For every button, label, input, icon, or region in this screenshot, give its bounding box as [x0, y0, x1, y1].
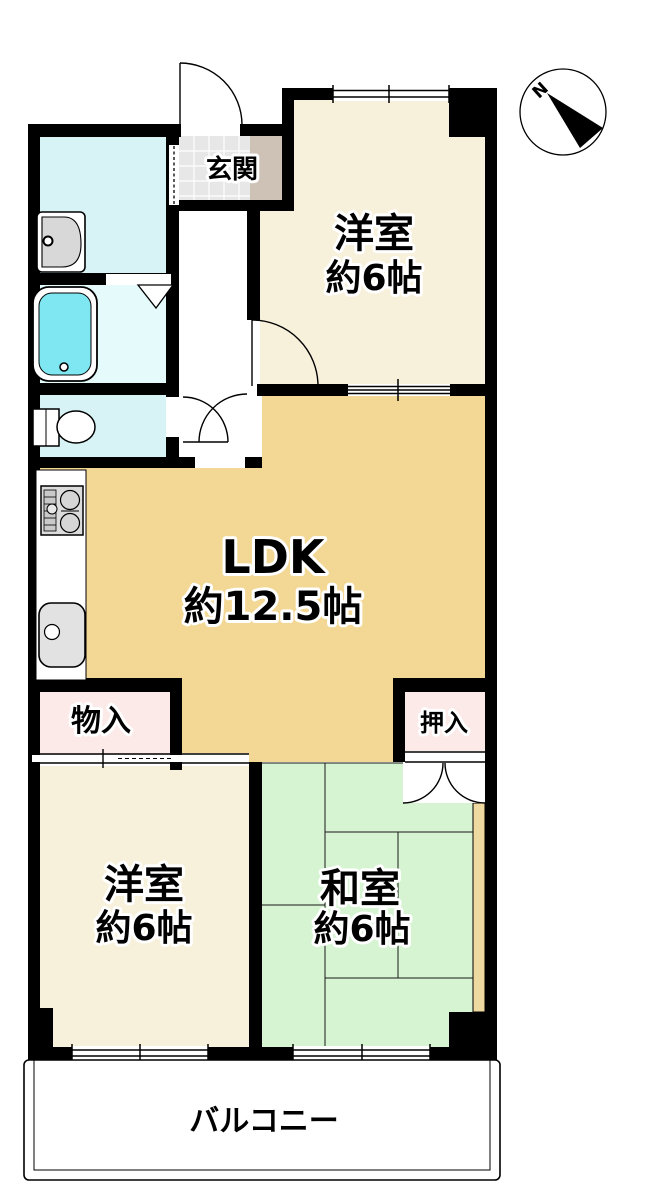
floor-plan-drawing: N 玄関 洋室 約6帖 LDK 約12.5帖 物入 押入 洋室 約6帖 和室 約…	[0, 0, 652, 1200]
tatami-room-size: 約6帖	[313, 909, 410, 950]
north-compass: N	[520, 69, 606, 155]
corridor-ldk-door	[183, 394, 247, 442]
floor-plan-page: N 玄関 洋室 約6帖 LDK 約12.5帖 物入 押入 洋室 約6帖 和室 約…	[0, 0, 652, 1200]
ldk-size: 約12.5帖	[184, 584, 363, 630]
window-north	[333, 85, 449, 103]
bedroom-sw-size: 約6帖	[95, 908, 192, 949]
kitchen-sink-icon	[39, 603, 85, 667]
bedroom-ne-size: 約6帖	[325, 258, 422, 299]
front-door	[180, 63, 242, 125]
washbasin-icon	[37, 212, 85, 272]
bathtub-icon	[33, 287, 97, 381]
balcony-label: バルコニー	[189, 1104, 338, 1139]
stove-icon	[41, 486, 83, 535]
genkan-label: 玄関	[206, 154, 258, 185]
bedroom-sw-label: 洋室	[104, 862, 184, 908]
storage-label: 物入	[71, 704, 131, 739]
tatami-room-label: 和室	[320, 866, 400, 912]
bedroom-ne-label: 洋室	[334, 211, 414, 257]
ldk-label: LDK	[221, 530, 326, 584]
kitchen-counter	[36, 470, 86, 680]
closet-double-door	[403, 762, 485, 803]
tatami-edge-board	[473, 803, 485, 1012]
closet-label: 押入	[420, 709, 468, 737]
